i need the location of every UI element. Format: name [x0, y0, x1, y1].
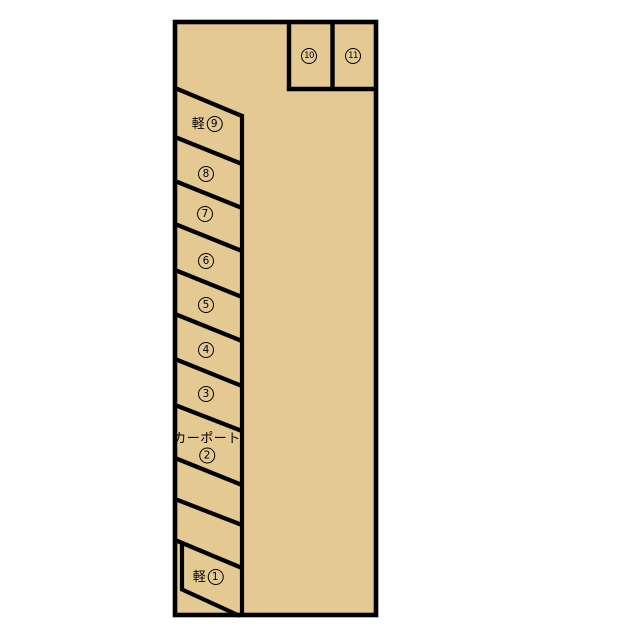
- circled-number-2: 2: [199, 448, 215, 464]
- stall-1-prefix: 軽: [193, 571, 207, 584]
- circled-number-8: 8: [198, 166, 214, 182]
- stall-label-4: 4: [198, 342, 214, 358]
- circled-number-9: 9: [206, 116, 222, 132]
- circled-number-7: 7: [197, 206, 213, 222]
- circled-number-5: 5: [198, 297, 214, 313]
- upper-space-label-10: 10: [301, 48, 317, 64]
- stall-label-5: 5: [198, 297, 214, 313]
- parking-diagram: 10 11 軽 9 8 7 6 5 4 3 カーポート 2 軽 1: [0, 0, 640, 640]
- stall-label-1: 軽 1: [193, 569, 224, 585]
- parking-lot-linework: [0, 0, 640, 640]
- stall-label-3: 3: [198, 386, 214, 402]
- stall-label-7: 7: [197, 206, 213, 222]
- stall-9-prefix: 軽: [192, 118, 206, 131]
- circled-number-6: 6: [198, 253, 214, 269]
- lot-outline: [175, 22, 376, 615]
- circled-number-4: 4: [198, 342, 214, 358]
- circled-number-1: 1: [207, 569, 223, 585]
- stall-label-2-carport: カーポート 2: [173, 433, 241, 464]
- stall-2-carport-text: カーポート: [173, 433, 241, 446]
- stall-label-6: 6: [198, 253, 214, 269]
- circled-number-10: 10: [301, 48, 317, 64]
- circled-number-11: 11: [345, 48, 361, 64]
- stall-label-9: 軽 9: [192, 116, 223, 132]
- circled-number-3: 3: [198, 386, 214, 402]
- upper-space-label-11: 11: [345, 48, 361, 64]
- stall-label-8: 8: [198, 166, 214, 182]
